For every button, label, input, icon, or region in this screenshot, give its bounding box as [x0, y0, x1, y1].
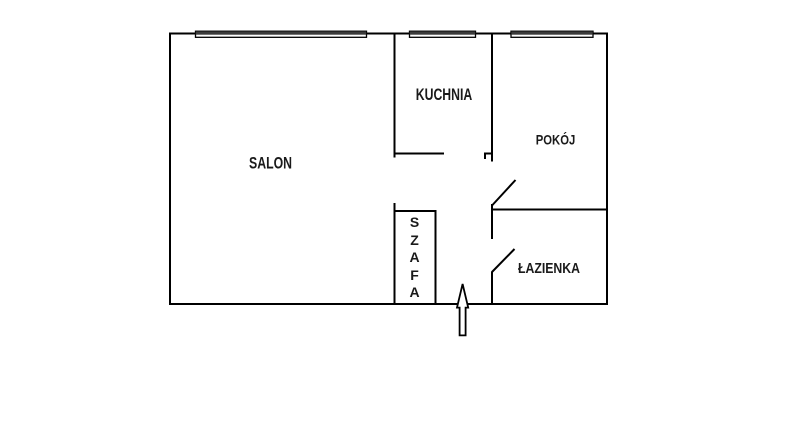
svg-text:S: S — [410, 214, 419, 230]
svg-text:F: F — [410, 267, 419, 283]
svg-text:Z: Z — [410, 232, 419, 248]
svg-text:A: A — [409, 249, 419, 265]
svg-text:A: A — [409, 284, 419, 300]
svg-text:POKÓJ: POKÓJ — [536, 131, 576, 148]
svg-text:ŁAZIENKA: ŁAZIENKA — [518, 261, 580, 277]
svg-text:SALON: SALON — [249, 155, 292, 173]
svg-text:KUCHNIA: KUCHNIA — [416, 86, 473, 104]
